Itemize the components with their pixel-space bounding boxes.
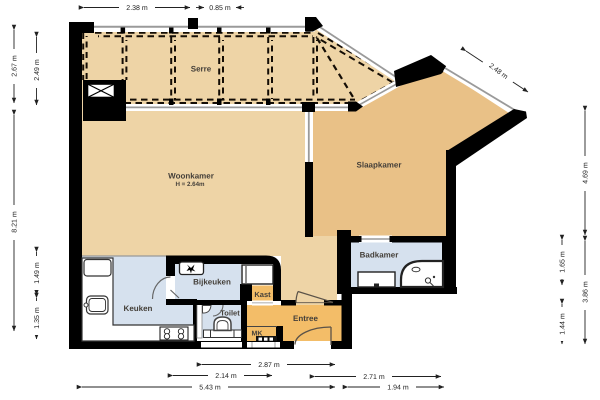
svg-text:Entree: Entree [293,314,318,323]
svg-text:2.49 m: 2.49 m [34,59,41,81]
svg-text:2.67 m: 2.67 m [12,55,19,77]
svg-text:4.69 m: 4.69 m [583,162,590,184]
svg-text:1.44 m: 1.44 m [560,313,567,335]
svg-text:Keuken: Keuken [124,304,153,313]
svg-text:Kast: Kast [254,290,271,299]
svg-text:Toilet: Toilet [220,309,240,318]
svg-text:MK: MK [252,331,263,338]
svg-text:8.21 m: 8.21 m [12,211,19,233]
svg-text:Badkamer: Badkamer [360,251,399,260]
svg-text:Bijkeuken: Bijkeuken [193,278,231,287]
svg-text:1.65 m: 1.65 m [560,251,567,273]
svg-text:Slaapkamer: Slaapkamer [357,161,402,170]
svg-text:5.43 m: 5.43 m [199,385,221,392]
svg-text:1.94 m: 1.94 m [387,385,409,392]
svg-text:H = 2.64m: H = 2.64m [175,181,205,188]
svg-text:Serre: Serre [191,65,212,74]
svg-text:0.85 m: 0.85 m [209,5,231,12]
svg-text:1.35 m: 1.35 m [34,307,41,329]
svg-text:1.49 m: 1.49 m [34,262,41,284]
svg-text:3.86 m: 3.86 m [583,281,590,303]
svg-text:2.14 m: 2.14 m [215,373,237,380]
svg-text:2.87 m: 2.87 m [258,362,280,369]
svg-text:Woonkamer: Woonkamer [168,172,214,181]
svg-text:2.38 m: 2.38 m [126,5,148,12]
svg-text:2.71 m: 2.71 m [363,374,385,381]
